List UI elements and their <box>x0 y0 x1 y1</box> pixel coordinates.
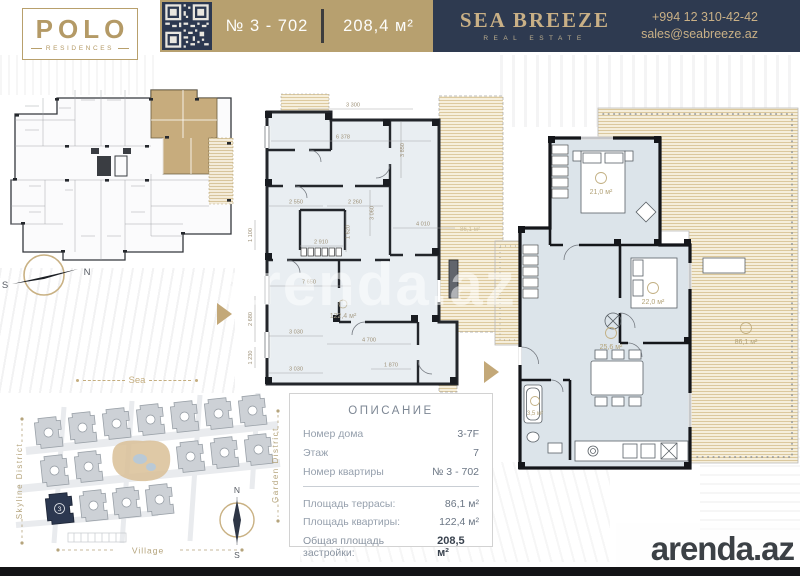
sea-dot <box>76 379 79 382</box>
dimension-label: 1 100 <box>248 228 254 242</box>
row-value: № 3 - 702 <box>432 466 479 478</box>
row-label: Номер дома <box>303 428 363 440</box>
row-value: 7 <box>473 447 479 459</box>
room-area-label: 25,6 м² <box>600 344 623 351</box>
room-area-label: 3,5 м² <box>527 411 543 417</box>
polo-residences-logo: POLO RESIDENCES <box>22 8 138 60</box>
dimension-label: 6 378 <box>336 135 350 141</box>
key-plan <box>5 86 240 268</box>
dimension-label: 3 030 <box>289 330 303 336</box>
dimension-label: 3 850 <box>400 143 406 157</box>
bottom-bar <box>0 567 800 576</box>
description-row: Номер дома 3-7F <box>303 428 479 440</box>
row-value: 86,1 м² <box>445 498 479 510</box>
description-row: Номер квартиры № 3 - 702 <box>303 466 479 478</box>
agency-contacts: +994 12 310-42-42 sales@seabreeze.az <box>641 9 758 43</box>
compass-needle <box>12 269 78 284</box>
row-label: Площадь квартиры: <box>303 516 400 528</box>
room-area-label: 22,0 м² <box>642 299 665 306</box>
dimension-label: 3 300 <box>346 103 360 109</box>
dimension-label: 1 230 <box>248 351 254 365</box>
dimension-label: 1 620 <box>346 225 352 239</box>
technical-floor-plan: 3 300 6 378 3 850 2 550 2 260 3 060 4 01… <box>243 90 505 400</box>
dimension-label: 2 550 <box>289 200 303 206</box>
compass-horizontal: N S <box>0 250 95 302</box>
furnished-floor-plan: 21,0 м² 22,0 м² 25,6 м² 3,5 м² 86,1 м² <box>493 93 800 480</box>
site-map: 3 Skyline District Garden District Villa <box>8 393 290 565</box>
watermark-corner-text: arenda.az <box>651 532 800 572</box>
watermark-corner: arenda.az <box>616 523 800 572</box>
description-divider <box>303 486 479 487</box>
description-row: Площадь квартиры: 122,4 м² <box>303 516 479 528</box>
apartment-number: № 3 - 702 <box>213 0 321 52</box>
logo-subtitle: RESIDENCES <box>31 45 129 52</box>
parking-strip <box>68 533 126 542</box>
logo-rule <box>118 48 129 49</box>
dining-table <box>591 361 643 395</box>
agency-brand: SEA BREEZE REAL ESTATE <box>455 8 615 42</box>
agency-email: sales@seabreeze.az <box>641 26 758 43</box>
row-value: 3-7F <box>457 428 479 440</box>
dimension-label: 2 260 <box>348 200 362 206</box>
compass-south-label: S <box>2 280 8 291</box>
logo-subtitle-text: RESIDENCES <box>46 45 114 52</box>
entrance-arrow <box>484 361 499 383</box>
balcony-hatch <box>281 94 329 112</box>
unit-terrace-hatch <box>209 138 233 204</box>
toilet <box>527 432 539 442</box>
compass-ring <box>24 255 64 295</box>
logo-title: POLO <box>36 16 130 42</box>
dimension-label: 4 700 <box>362 338 376 344</box>
description-panel: ОПИСАНИЕ Номер дома 3-7F Этаж 7 Номер кв… <box>289 393 493 547</box>
description-row-total: Общая площадь застройки: 208,5 м² <box>303 535 479 559</box>
agency-name: SEA BREEZE <box>455 8 615 33</box>
compass-vertical: N S <box>220 485 254 560</box>
terrace-sofa <box>703 258 745 273</box>
room-area-label: 21,0 м² <box>590 189 613 196</box>
brochure-page: POLO RESIDENCES <box>0 0 800 576</box>
district-left-label: Skyline District <box>15 443 24 519</box>
sink <box>548 443 562 453</box>
dimension-label: 2 680 <box>248 312 254 326</box>
dimension-label: 7 650 <box>302 280 316 286</box>
dimension-label: 3 030 <box>289 367 303 373</box>
dimension-label: 4 010 <box>416 222 430 228</box>
sea-dash <box>83 380 125 381</box>
description-title: ОПИСАНИЕ <box>303 405 479 417</box>
sea-dot <box>195 379 198 382</box>
row-value: 208,5 м² <box>437 535 479 559</box>
qr-code <box>162 2 212 50</box>
flue-shaft <box>449 260 458 298</box>
sea-label-text: Sea <box>129 375 146 386</box>
unit-pointer-arrow <box>217 303 232 325</box>
row-label: Общая площадь застройки: <box>303 535 437 559</box>
village-label: Village <box>132 546 164 556</box>
dimension-label: 2 910 <box>314 240 328 246</box>
amenity-area <box>112 440 170 481</box>
row-value: 122,4 м² <box>439 516 479 528</box>
logo-rule <box>31 48 42 49</box>
row-label: Этаж <box>303 447 328 459</box>
compass-north-label: N <box>234 485 240 495</box>
apartment-total-area: 208,4 м² <box>324 0 433 52</box>
dimension-label: 3 060 <box>370 206 376 220</box>
compass-north-label: N <box>84 267 91 278</box>
terrace-area-label: 86,1 м² <box>460 226 480 233</box>
description-row: Этаж 7 <box>303 447 479 459</box>
sea-dash <box>149 380 191 381</box>
agency-tagline: REAL ESTATE <box>455 35 615 42</box>
dimension-label: 1 870 <box>384 363 398 369</box>
terrace-area-label: 86,1 м² <box>735 339 758 346</box>
compass-south-label: S <box>234 550 240 560</box>
village-guide: Village <box>56 546 243 556</box>
row-label: Площадь террасы: <box>303 498 395 510</box>
row-label: Номер квартиры <box>303 466 384 478</box>
highlighted-building: 3 <box>45 492 74 525</box>
district-right-label: Garden District <box>271 427 280 503</box>
description-row: Площадь террасы: 86,1 м² <box>303 498 479 510</box>
apartment-area-label: 122,4 м² <box>330 313 357 320</box>
qr-code-pattern <box>162 2 212 50</box>
sea-label: Sea <box>76 375 198 386</box>
agency-phone: +994 12 310-42-42 <box>641 9 758 26</box>
